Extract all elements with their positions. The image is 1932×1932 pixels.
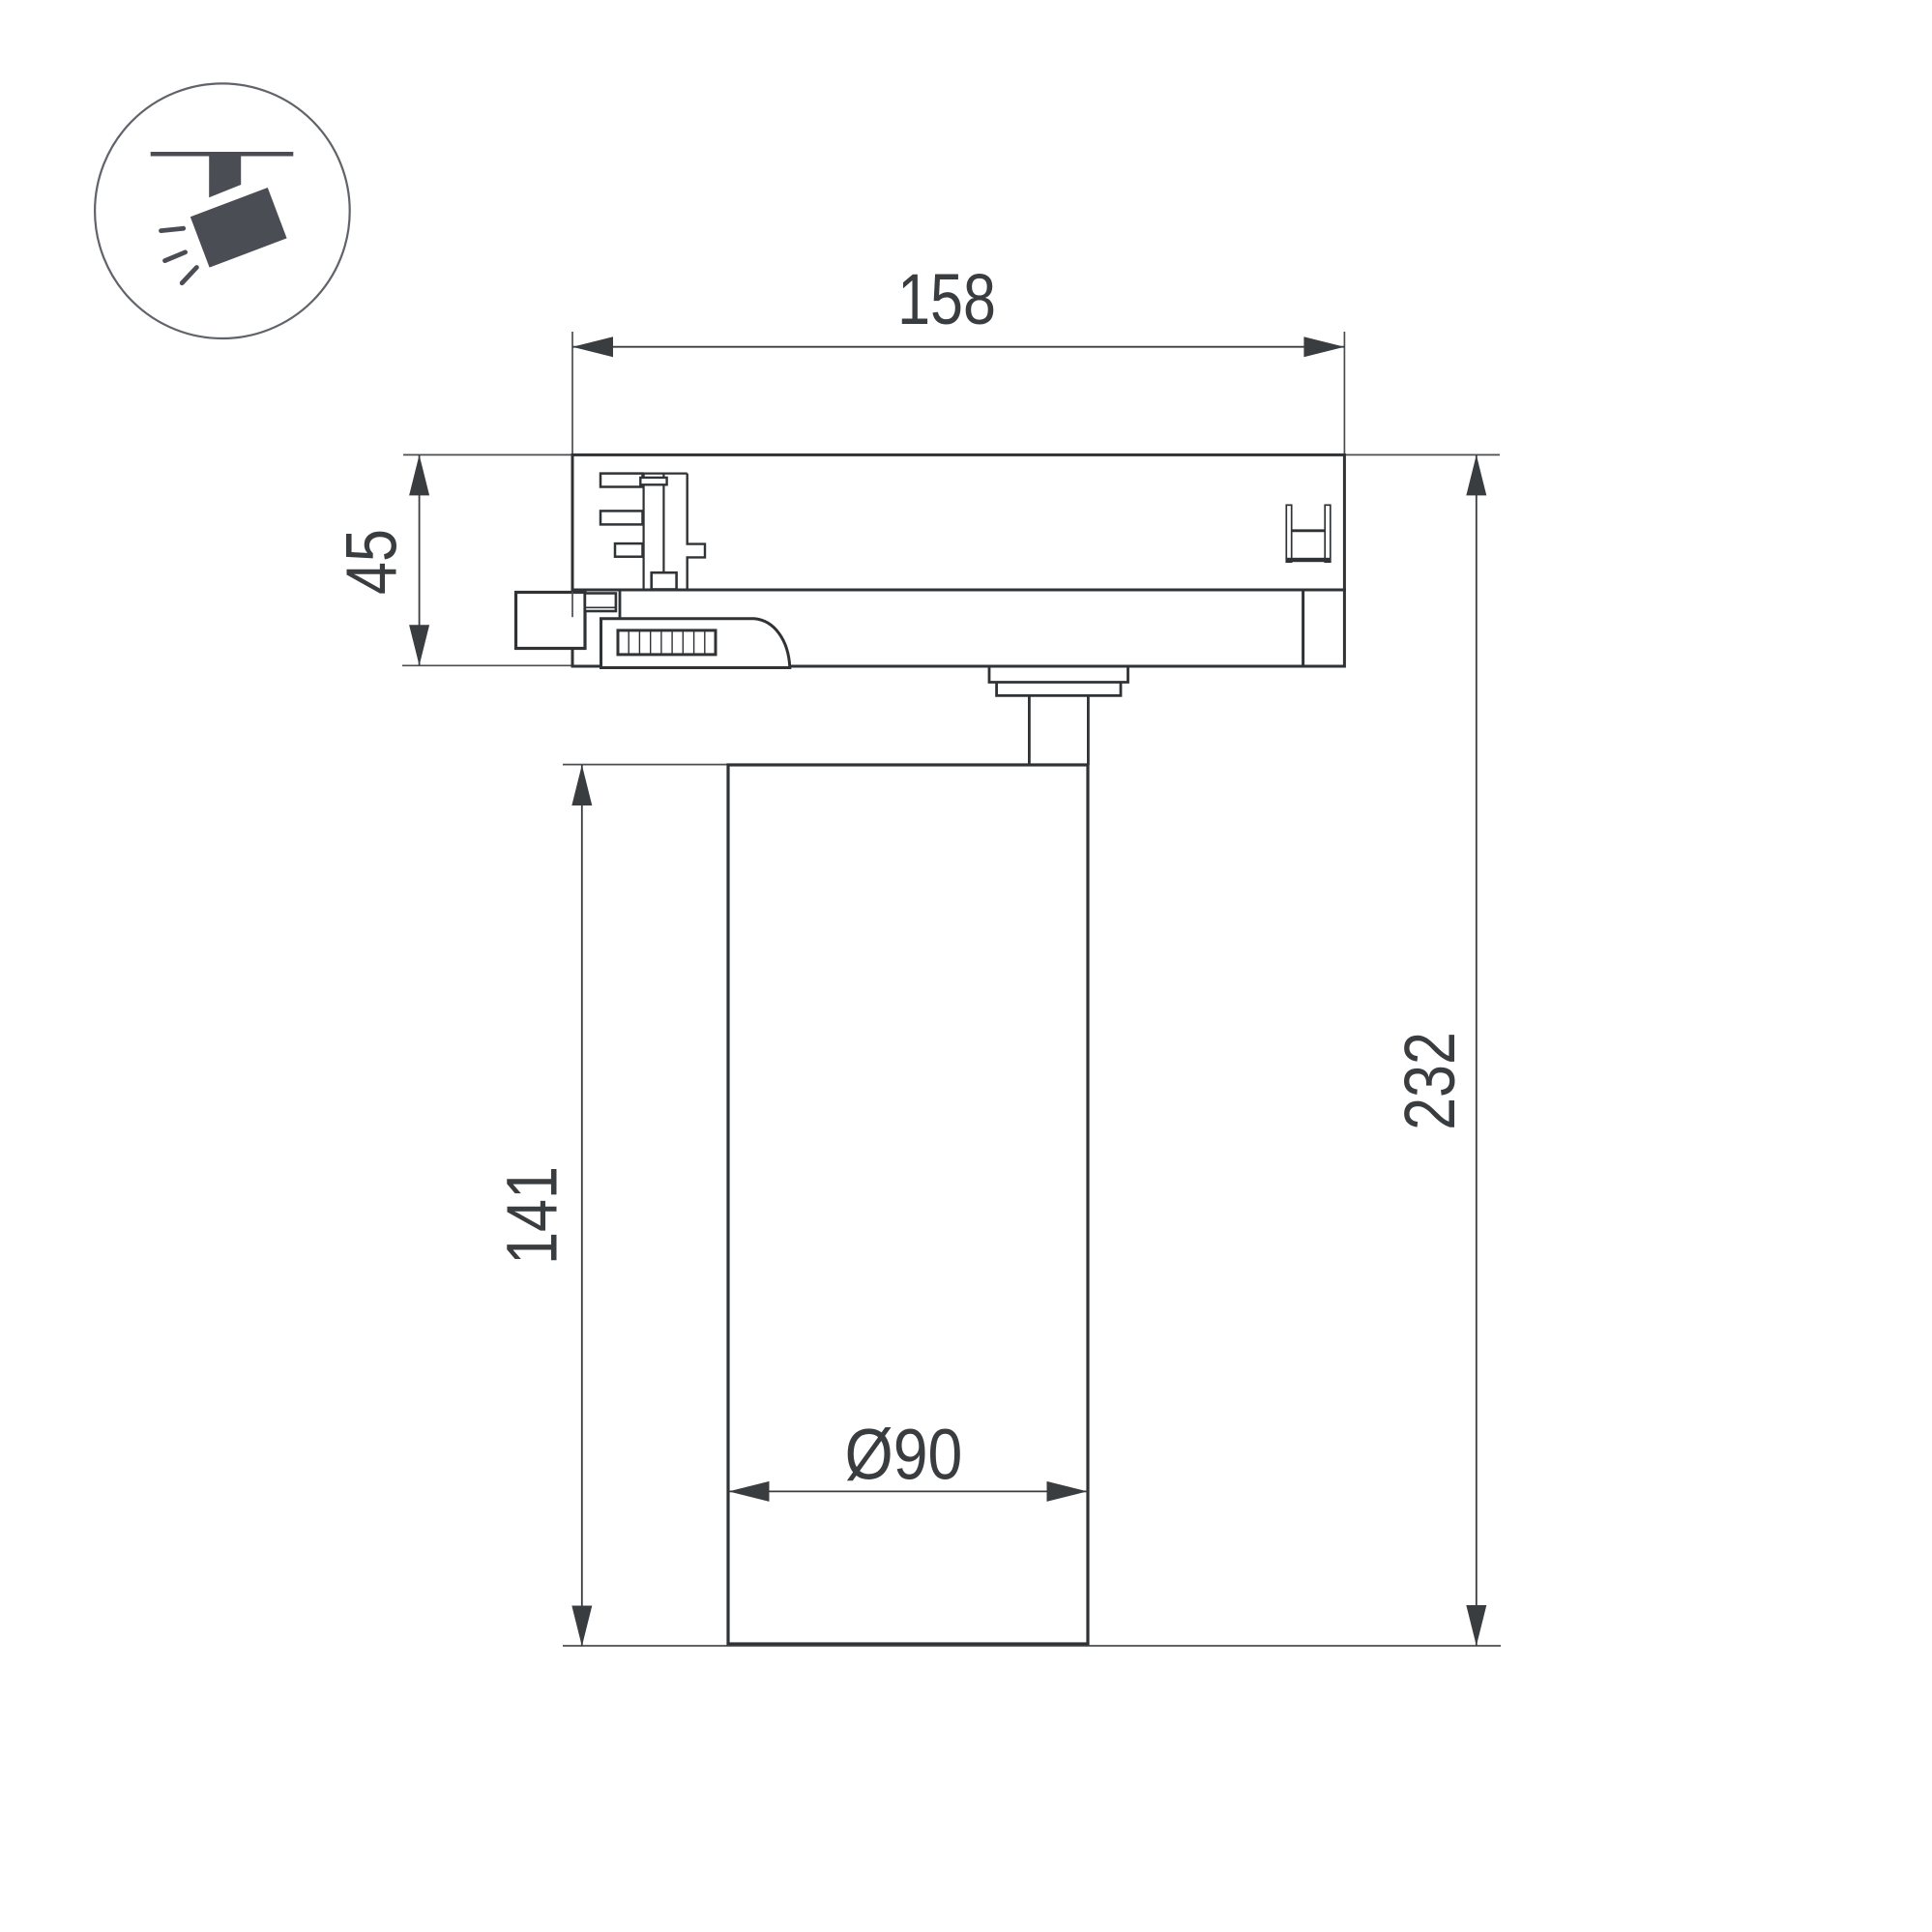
svg-text:Ø90: Ø90: [845, 1414, 963, 1494]
svg-text:158: 158: [897, 261, 996, 340]
svg-text:45: 45: [333, 529, 412, 595]
svg-text:232: 232: [1391, 1032, 1471, 1130]
svg-text:141: 141: [493, 1166, 572, 1265]
